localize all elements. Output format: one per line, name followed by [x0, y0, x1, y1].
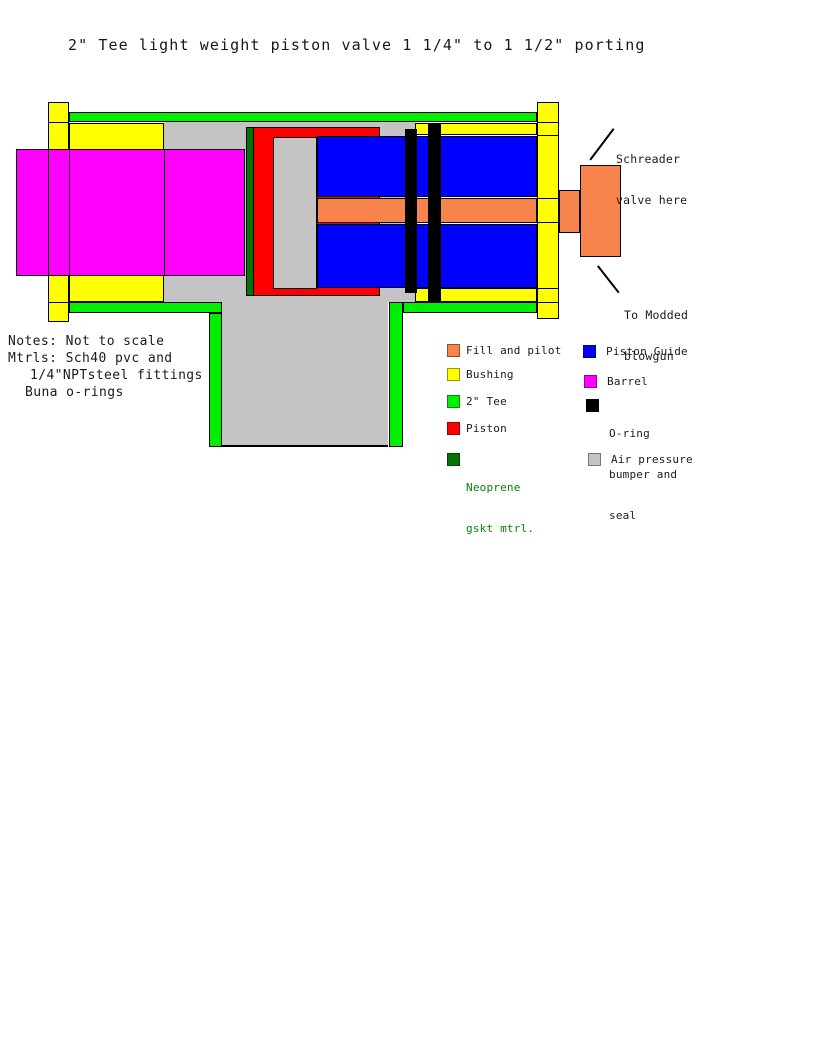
legend-label-line: O-ring	[609, 427, 677, 441]
note-line: Notes: Not to scale	[8, 334, 164, 349]
piston-air-pocket	[273, 137, 317, 289]
neoprene-gasket	[246, 127, 254, 296]
bushing-edge-line	[164, 150, 165, 275]
legend-row-neoprene: Neoprene gskt mtrl.	[447, 453, 534, 563]
legend-row-barrel: Barrel	[584, 375, 648, 389]
tee-branch-wall-right	[389, 302, 403, 447]
legend-label: 2" Tee	[466, 395, 507, 409]
flange-edge-line	[48, 150, 49, 275]
piston-guide-top	[317, 136, 537, 197]
piston-guide-bottom	[317, 224, 537, 288]
legend-label-line: gskt mtrl.	[466, 522, 534, 536]
bushing-strip-bottom-left	[69, 275, 164, 302]
pilot-fitting-body	[580, 165, 621, 257]
legend-label: Piston Guide	[606, 345, 688, 359]
air-pressure-branch	[222, 296, 388, 447]
flange-divider-line	[48, 302, 69, 303]
note-line: 1/4"NPTsteel fittings	[30, 368, 203, 383]
legend-label-line: bumper and	[609, 468, 677, 482]
drawing-page: 2" Tee light weight piston valve 1 1/4" …	[0, 0, 816, 1056]
valve-cross-section-diagram	[0, 0, 816, 480]
legend-row-air-pressure: Air pressure	[588, 453, 693, 467]
tee-branch-wall-left	[209, 313, 222, 447]
legend-swatch-fill-and-pilot	[447, 344, 460, 357]
barrel	[16, 149, 245, 276]
legend-label: Piston	[466, 422, 507, 436]
schreader-leader-line	[589, 128, 614, 160]
legend-swatch-piston	[447, 422, 460, 435]
legend-swatch-air-pressure	[588, 453, 601, 466]
legend-row-oring: O-ring bumper and seal	[586, 399, 677, 551]
note-line: Buna o-rings	[25, 385, 124, 400]
legend-row-tee: 2" Tee	[447, 395, 507, 409]
legend-label-line: Neoprene	[466, 481, 534, 495]
legend-row-fill-and-pilot: Fill and pilot	[447, 344, 562, 358]
flange-divider-line	[48, 122, 69, 123]
legend-label: Barrel	[607, 375, 648, 389]
legend-swatch-piston-guide	[583, 345, 596, 358]
pilot-fitting-stub	[559, 190, 580, 233]
tee-bottom-wall-right	[403, 302, 537, 313]
flange-divider-line	[537, 288, 559, 289]
oring-seal	[428, 123, 441, 302]
legend-swatch-barrel	[584, 375, 597, 388]
flange-divider-line	[537, 198, 559, 199]
legend-row-bushing: Bushing	[447, 368, 514, 382]
flange-divider-line	[537, 122, 559, 123]
note-line: Mtrls: Sch40 pvc and	[8, 351, 173, 366]
bushing-strip-top-left	[69, 123, 164, 150]
oring-bumper	[405, 129, 417, 293]
legend-label: O-ring bumper and seal	[609, 399, 677, 551]
legend-row-piston: Piston	[447, 422, 507, 436]
legend-label: Fill and pilot	[466, 344, 562, 358]
flange-divider-line	[537, 222, 559, 223]
legend-swatch-bushing	[447, 368, 460, 381]
legend-row-piston-guide: Piston Guide	[583, 345, 688, 359]
flange-divider-line	[537, 135, 559, 136]
tee-top-wall	[69, 112, 537, 122]
tee-bottom-wall-left	[69, 302, 222, 313]
legend-swatch-tee	[447, 395, 460, 408]
annotation-line: Schreader	[616, 153, 687, 167]
legend-label: Bushing	[466, 368, 514, 382]
legend-swatch-neoprene	[447, 453, 460, 466]
annotation-line: valve here	[616, 194, 687, 208]
blowgun-leader-line	[597, 265, 619, 293]
flange-divider-line	[537, 302, 559, 303]
fill-pilot-rod	[317, 198, 537, 223]
flange-edge-line	[69, 150, 70, 275]
annotation-line: To Modded	[624, 309, 688, 323]
legend-label: Neoprene gskt mtrl.	[466, 453, 534, 563]
schreader-annotation: Schreader valve here	[616, 126, 687, 234]
legend-label: Air pressure	[611, 453, 693, 467]
legend-swatch-oring	[586, 399, 599, 412]
legend-label-line: seal	[609, 509, 677, 523]
blowgun-annotation: To Modded blowgun	[624, 282, 688, 390]
